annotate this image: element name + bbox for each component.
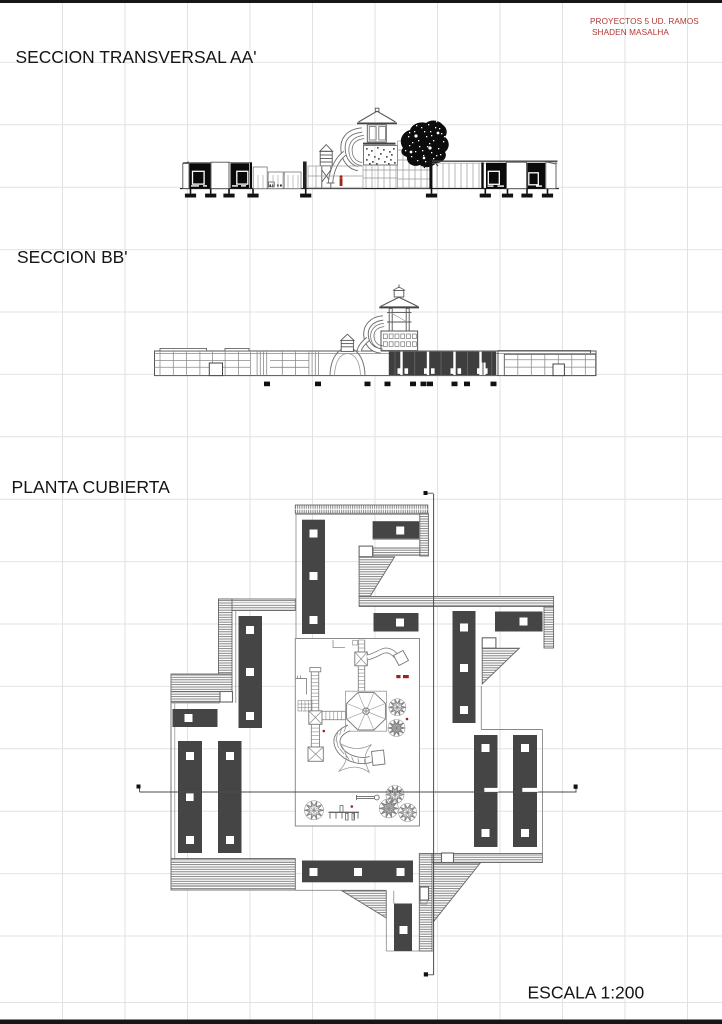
svg-text:SECCION TRANSVERSAL AA': SECCION TRANSVERSAL AA' — [16, 47, 257, 67]
svg-text:PROYECTOS 5 UD. RAMOS: PROYECTOS 5 UD. RAMOS — [590, 17, 699, 26]
svg-text:SECCION BB': SECCION BB' — [17, 247, 128, 267]
svg-text:SHADEN MASALHA: SHADEN MASALHA — [592, 28, 669, 37]
svg-text:PLANTA CUBIERTA: PLANTA CUBIERTA — [12, 477, 171, 497]
svg-text:ESCALA 1:200: ESCALA 1:200 — [528, 982, 645, 1002]
